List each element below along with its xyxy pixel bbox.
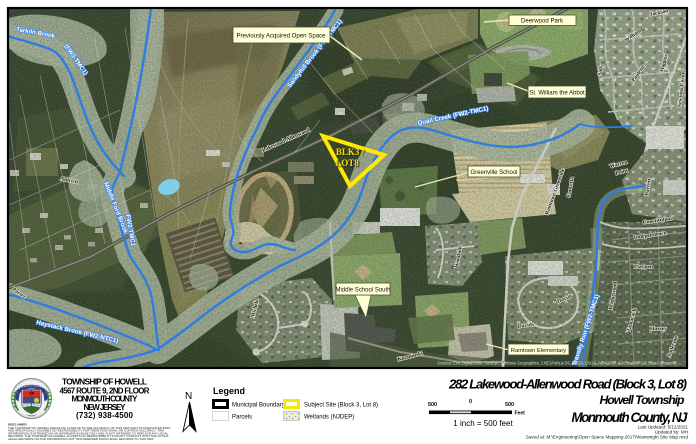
svg-text:500: 500 [428,402,437,408]
svg-text:St. William the Abbot: St. William the Abbot [529,91,585,97]
svg-text:Municipal Boundary: Municipal Boundary [232,403,285,409]
svg-text:282 Lakewood-Allenwood Road (B: 282 Lakewood-Allenwood Road (Block 3, Lo… [448,377,687,392]
svg-text:Saved at: M:\Engineering\Open: Saved at: M:\Engineering\Open Space Mapp… [526,435,689,440]
svg-text:1 inch = 500 feet: 1 inch = 500 feet [453,419,513,428]
svg-text:BLK3 /: BLK3 / [336,147,365,157]
svg-text:LOT8: LOT8 [335,158,359,168]
svg-text:Ramtown Elementary: Ramtown Elementary [511,348,567,354]
svg-text:500: 500 [505,402,514,408]
svg-text:Feet: Feet [515,411,526,417]
svg-text:Sources: Esri, DigitalGlobe, G: Sources: Esri, DigitalGlobe, GeoEye, Ear… [437,361,678,366]
svg-text:Howell Township: Howell Township [600,393,686,407]
svg-text:0: 0 [469,399,472,405]
svg-text:Deerwood Park: Deerwood Park [521,18,564,25]
svg-text:Parcels: Parcels [232,415,252,421]
svg-text:(732) 938-4500: (732) 938-4500 [76,411,134,420]
svg-text:Hussey: Hussey [650,326,667,332]
svg-text:Previously Acquired Open Space: Previously Acquired Open Space [236,33,326,40]
svg-text:Monmouth County, NJ: Monmouth County, NJ [572,410,689,425]
svg-text:LEGAL RECORDS OR FOR INFORMATI: LEGAL RECORDS OR FOR INFORMATION NOT TRA… [8,437,154,441]
svg-text:Legend: Legend [213,386,245,396]
svg-text:Greenville School: Greenville School [470,170,517,176]
svg-text:Subject Site (Block 3, Lot 8): Subject Site (Block 3, Lot 8) [304,403,378,409]
svg-text:N: N [185,391,192,402]
svg-text:Middle School South: Middle School South [335,288,390,294]
svg-text:TOWNSHIP OF HOWELL: TOWNSHIP OF HOWELL [62,376,147,386]
svg-text:Playpen: Playpen [634,264,653,270]
svg-text:Wetlands (NJDEP): Wetlands (NJDEP) [304,415,354,421]
